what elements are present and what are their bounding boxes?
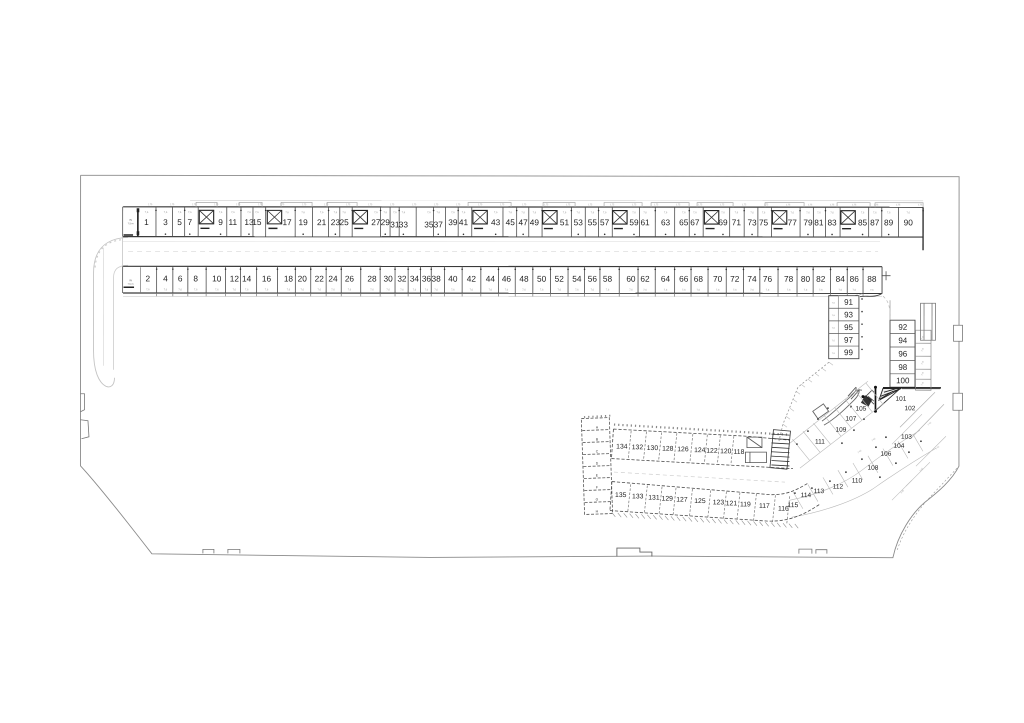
svg-text:7,6: 7,6 [591,289,595,292]
svg-text:1,75: 1,75 [808,204,813,206]
svg-text:7,6: 7,6 [861,211,865,214]
svg-text:126: 126 [677,446,689,453]
svg-text:7,6: 7,6 [806,211,810,214]
svg-text:91: 91 [844,298,853,307]
svg-text:7,6: 7,6 [219,211,223,214]
svg-text:88: 88 [867,274,877,284]
svg-text:55: 55 [588,217,598,227]
svg-text:1,75: 1,75 [324,204,329,206]
svg-text:1,75: 1,75 [412,204,417,206]
svg-text:1,75: 1,75 [522,204,527,206]
svg-text:27: 27 [371,217,381,227]
svg-text:69: 69 [718,217,728,227]
svg-text:26: 26 [345,274,355,284]
svg-text:7,6: 7,6 [215,288,219,291]
svg-text:19: 19 [299,217,309,227]
svg-text:7,6: 7,6 [287,288,291,291]
svg-text:7,6: 7,6 [787,289,791,292]
svg-text:67: 67 [690,217,700,227]
svg-text:7+6: 7+6 [857,449,863,454]
svg-text:63: 63 [661,217,671,227]
svg-text:1,75: 1,75 [632,204,637,206]
svg-text:7,6: 7,6 [664,211,668,214]
svg-text:97: 97 [844,336,853,345]
svg-text:D: D [596,462,599,466]
svg-text:7,6: 7,6 [285,211,289,214]
svg-text:131: 131 [648,495,660,502]
svg-text:15: 15 [252,217,262,227]
svg-text:7,6: 7,6 [603,211,607,214]
svg-text:49: 49 [530,217,540,227]
svg-text:7,6: 7,6 [830,211,834,214]
svg-text:1,75: 1,75 [346,204,351,206]
svg-text:114: 114 [801,492,812,499]
svg-text:45: 45 [506,217,516,227]
svg-text:5: 5 [177,217,182,227]
svg-text:111: 111 [815,439,825,446]
svg-text:99: 99 [844,348,853,357]
svg-text:42: 42 [467,274,477,284]
svg-text:56: 56 [588,274,598,284]
svg-text:7+6: 7+6 [935,445,940,450]
svg-text:E: E [596,474,599,478]
svg-text:7,6: 7,6 [682,211,686,214]
svg-text:1,75: 1,75 [148,204,153,206]
svg-text:1,75: 1,75 [852,204,857,206]
svg-text:7+6: 7+6 [919,467,924,473]
svg-text:64: 64 [661,274,671,284]
svg-text:7,6: 7,6 [384,211,388,214]
svg-text:33: 33 [399,219,409,229]
svg-text:7,6: 7,6 [451,211,455,214]
svg-text:80: 80 [801,274,811,284]
svg-text:7,6: 7,6 [386,288,390,291]
svg-text:127: 127 [676,497,688,504]
svg-text:IN: IN [129,278,132,282]
svg-text:9: 9 [218,217,223,227]
svg-text:1,75: 1,75 [610,204,615,206]
svg-text:7,6: 7,6 [164,211,168,214]
svg-text:1,75: 1,75 [456,204,461,206]
svg-text:H: H [596,510,599,514]
svg-text:51: 51 [560,217,570,227]
svg-text:68: 68 [694,274,704,284]
svg-text:1,75: 1,75 [500,204,505,206]
svg-text:7,6: 7,6 [766,289,770,292]
svg-text:39: 39 [448,217,458,227]
svg-text:112: 112 [833,484,844,491]
svg-text:1,75: 1,75 [698,204,703,206]
svg-text:7+6: 7+6 [927,421,932,426]
svg-text:129: 129 [662,496,674,503]
svg-text:61: 61 [640,217,650,227]
svg-text:7,6: 7,6 [643,289,647,292]
svg-text:98: 98 [898,363,907,372]
svg-text:120: 120 [720,448,732,455]
svg-text:28: 28 [367,274,377,284]
svg-text:130: 130 [647,445,659,452]
svg-text:113: 113 [814,488,825,495]
svg-text:7,6: 7,6 [231,211,235,214]
svg-text:108: 108 [868,465,879,472]
svg-text:96: 96 [898,350,907,359]
svg-text:7,6: 7,6 [188,211,192,214]
svg-text:7,6: 7,6 [320,211,324,214]
svg-text:7,6: 7,6 [629,289,633,292]
svg-text:7,6: 7,6 [462,211,466,214]
svg-text:37: 37 [434,219,444,229]
svg-text:7,6: 7,6 [370,288,374,291]
svg-text:128: 128 [662,446,674,453]
svg-text:1,75: 1,75 [170,204,175,206]
svg-text:2: 2 [146,273,151,283]
svg-text:119: 119 [740,501,751,508]
svg-text:7,6: 7,6 [870,289,874,292]
svg-text:7,6: 7,6 [682,289,686,292]
svg-text:1,75: 1,75 [434,204,439,206]
svg-text:7,6: 7,6 [301,211,305,214]
svg-text:83: 83 [827,217,837,227]
svg-text:117: 117 [759,503,770,510]
svg-text:4: 4 [163,273,168,283]
svg-text:7,6: 7,6 [194,288,198,291]
svg-text:133: 133 [632,493,644,500]
svg-text:29: 29 [381,217,391,227]
svg-text:7,5 m: 7,5 m [128,283,134,286]
svg-text:132: 132 [632,444,644,451]
svg-text:7,6: 7,6 [664,289,668,292]
svg-text:1,75: 1,75 [896,205,901,207]
svg-text:62: 62 [640,274,650,284]
svg-text:7,6: 7,6 [374,211,378,214]
svg-text:102: 102 [905,405,916,412]
svg-text:7,6: 7,6 [838,289,842,292]
svg-text:110: 110 [852,478,863,485]
svg-text:89: 89 [884,217,894,227]
svg-text:43: 43 [491,217,501,227]
svg-text:7,6: 7,6 [470,288,474,291]
svg-text:121: 121 [726,500,738,507]
svg-text:7,6: 7,6 [255,211,259,214]
svg-text:1,75: 1,75 [676,204,681,206]
svg-text:7,6: 7,6 [762,211,766,214]
svg-text:71: 71 [732,217,742,227]
svg-text:7,6: 7,6 [233,288,237,291]
svg-text:7,6: 7,6 [178,288,182,291]
svg-text:7,6: 7,6 [577,211,581,214]
svg-text:73: 73 [747,217,757,227]
svg-text:77: 77 [788,217,798,227]
svg-text:66: 66 [679,274,689,284]
svg-text:100: 100 [896,376,910,385]
svg-text:58: 58 [603,274,613,284]
svg-text:52: 52 [555,274,565,284]
svg-text:92: 92 [898,323,907,332]
svg-text:124: 124 [694,447,706,454]
svg-text:1,75: 1,75 [742,204,747,206]
svg-text:57: 57 [600,217,610,227]
svg-text:7,6: 7,6 [451,288,455,291]
svg-text:7,6: 7,6 [750,289,754,292]
svg-text:7,6: 7,6 [735,211,739,214]
svg-text:7,6: 7,6 [791,211,795,214]
svg-text:34: 34 [410,274,420,284]
svg-text:3: 3 [163,217,168,227]
svg-text:7,6: 7,6 [540,289,544,292]
svg-text:7,6: 7,6 [427,211,431,214]
svg-text:85: 85 [858,217,868,227]
svg-text:135: 135 [615,492,627,499]
svg-text:95: 95 [844,323,853,332]
svg-text:1,75: 1,75 [368,204,373,206]
svg-text:1,75: 1,75 [720,204,725,206]
svg-text:6: 6 [178,273,183,283]
svg-text:118: 118 [734,449,745,456]
svg-text:1,75: 1,75 [654,204,659,206]
svg-text:74: 74 [747,274,757,284]
svg-text:7,6: 7,6 [819,289,823,292]
svg-text:7,6: 7,6 [591,211,595,214]
svg-text:106: 106 [881,451,892,458]
svg-text:109: 109 [836,427,847,434]
svg-text:7+6: 7+6 [921,335,925,340]
svg-text:79: 79 [803,217,813,227]
svg-text:105: 105 [856,406,867,413]
svg-text:7,6: 7,6 [247,211,251,214]
svg-text:7,6: 7,6 [721,211,725,214]
svg-text:86: 86 [850,274,860,284]
svg-text:7,6: 7,6 [402,211,406,214]
svg-text:7,6: 7,6 [887,211,891,214]
svg-text:104: 104 [894,443,905,450]
svg-text:7,6: 7,6 [331,288,335,291]
svg-text:38: 38 [432,274,442,284]
svg-text:7,6: 7,6 [733,289,737,292]
svg-text:17: 17 [282,217,292,227]
svg-text:7,6: 7,6 [804,289,808,292]
svg-text:7,6: 7,6 [505,288,509,291]
svg-text:7,6: 7,6 [693,211,697,214]
svg-text:84: 84 [836,274,846,284]
svg-text:1,75: 1,75 [830,204,835,206]
svg-text:54: 54 [572,274,582,284]
svg-text:7+6: 7+6 [921,371,925,376]
svg-text:115: 115 [788,502,799,509]
svg-text:59: 59 [629,217,639,227]
svg-text:48: 48 [519,274,529,284]
svg-text:93: 93 [844,310,853,319]
svg-text:7,6: 7,6 [434,288,438,291]
svg-text:1,75: 1,75 [764,204,769,206]
svg-text:7,6: 7,6 [317,288,321,291]
svg-text:7+6: 7+6 [871,437,877,442]
svg-text:47: 47 [519,217,529,227]
svg-text:7,6: 7,6 [643,211,647,214]
svg-text:22: 22 [315,273,325,283]
svg-text:78: 78 [784,274,794,284]
svg-text:65: 65 [679,217,689,227]
svg-text:41: 41 [459,217,469,227]
svg-text:1,75: 1,75 [236,204,241,206]
svg-text:1,75: 1,75 [302,204,307,206]
svg-text:18: 18 [284,273,294,283]
svg-text:94: 94 [898,336,907,345]
svg-text:53: 53 [574,217,584,227]
svg-text:A: A [596,426,599,430]
svg-text:1,75: 1,75 [918,205,923,207]
svg-text:7,6: 7,6 [533,211,537,214]
svg-text:70: 70 [713,274,723,284]
svg-text:40: 40 [448,274,458,284]
svg-text:7,6: 7,6 [521,211,525,214]
svg-text:44: 44 [486,274,496,284]
svg-text:7,6: 7,6 [716,289,720,292]
svg-text:72: 72 [730,274,740,284]
svg-text:35: 35 [424,219,434,229]
svg-text:7,6: 7,6 [522,289,526,292]
svg-text:7+6: 7+6 [921,360,925,365]
svg-text:7,6: 7,6 [393,211,397,214]
svg-text:1,75: 1,75 [214,204,219,206]
svg-text:7,6: 7,6 [494,211,498,214]
svg-text:25: 25 [340,217,350,227]
svg-text:B: B [596,438,599,442]
svg-text:123: 123 [713,499,725,506]
svg-text:1,75: 1,75 [588,204,593,206]
svg-text:82: 82 [816,274,826,284]
svg-text:81: 81 [814,217,824,227]
svg-text:125: 125 [694,498,706,505]
svg-text:7,6: 7,6 [348,288,352,291]
svg-text:1,75: 1,75 [390,204,395,206]
svg-text:7,6: 7,6 [557,289,561,292]
svg-text:7,6: 7,6 [575,289,579,292]
svg-text:G: G [596,498,599,502]
svg-text:7,6: 7,6 [750,211,754,214]
svg-text:7,6: 7,6 [632,211,636,214]
svg-text:7,6: 7,6 [334,211,338,214]
svg-text:1,75: 1,75 [544,204,549,206]
svg-text:7,6: 7,6 [300,288,304,291]
svg-text:1,75: 1,75 [478,204,483,206]
svg-text:7,6: 7,6 [873,211,877,214]
svg-text:7,6: 7,6 [178,211,182,214]
svg-text:7,6: 7,6 [852,289,856,292]
svg-text:107: 107 [846,416,857,423]
svg-text:7,6: 7,6 [697,289,701,292]
svg-text:76: 76 [763,274,773,284]
svg-text:90: 90 [904,217,914,227]
svg-text:1: 1 [144,217,149,227]
svg-text:7,5 m: 7,5 m [128,222,134,225]
svg-text:F: F [596,486,598,490]
svg-text:7,6: 7,6 [907,211,911,214]
svg-text:7+6: 7+6 [921,347,925,352]
svg-text:7,6: 7,6 [400,288,404,291]
svg-text:7+6: 7+6 [900,489,905,495]
svg-text:101: 101 [896,396,907,403]
svg-text:7,6: 7,6 [164,288,168,291]
svg-text:7,6: 7,6 [509,211,513,214]
svg-text:1,75: 1,75 [786,204,791,206]
svg-text:30: 30 [384,274,394,284]
svg-text:16: 16 [262,273,272,283]
svg-text:7,6: 7,6 [489,288,493,291]
svg-text:7,6: 7,6 [145,211,149,214]
svg-text:12: 12 [230,273,240,283]
svg-text:75: 75 [759,217,769,227]
svg-text:24: 24 [328,274,338,284]
svg-text:7,6: 7,6 [817,211,821,214]
svg-text:C: C [596,450,599,454]
svg-text:7,6: 7,6 [245,288,249,291]
svg-text:1,75: 1,75 [874,204,879,206]
svg-text:IN: IN [129,218,132,222]
svg-text:21: 21 [317,217,327,227]
svg-text:8: 8 [193,273,198,283]
svg-text:36: 36 [422,274,432,284]
svg-text:32: 32 [397,274,407,284]
svg-text:7,6: 7,6 [563,211,567,214]
svg-text:46: 46 [502,274,512,284]
svg-text:7,6: 7,6 [606,289,610,292]
svg-text:1,75: 1,75 [280,204,285,206]
svg-text:7,6: 7,6 [425,288,429,291]
svg-text:7,6: 7,6 [437,211,441,214]
svg-text:7,6: 7,6 [146,288,150,291]
svg-text:7,6: 7,6 [342,211,346,214]
svg-text:87: 87 [870,217,880,227]
svg-text:14: 14 [242,273,252,283]
svg-text:103: 103 [901,434,912,441]
svg-text:7: 7 [187,217,192,227]
svg-text:50: 50 [537,274,547,284]
svg-text:11: 11 [229,217,238,227]
svg-text:60: 60 [626,274,636,284]
svg-text:7,6: 7,6 [413,288,417,291]
svg-text:1,75: 1,75 [566,204,571,206]
svg-text:10: 10 [212,273,222,283]
svg-text:134: 134 [616,444,628,451]
svg-text:122: 122 [706,448,718,455]
svg-text:7+6: 7+6 [921,381,925,386]
svg-text:20: 20 [298,273,308,283]
svg-text:7,6: 7,6 [265,288,269,291]
